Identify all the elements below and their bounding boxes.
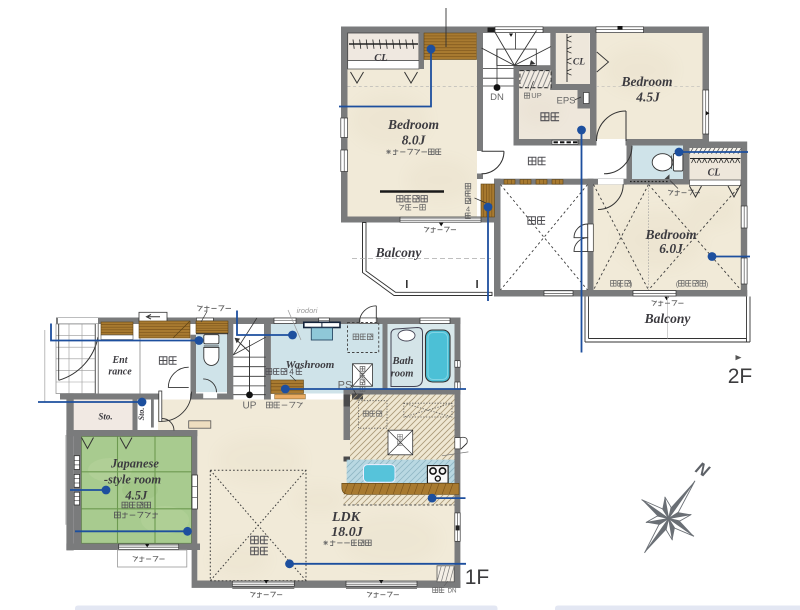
svg-text:-style room: -style room bbox=[104, 473, 162, 487]
svg-text:4.5J: 4.5J bbox=[124, 489, 148, 503]
svg-text:Sto.: Sto. bbox=[98, 412, 112, 422]
svg-text:LDK: LDK bbox=[331, 510, 362, 525]
svg-text:8.0J: 8.0J bbox=[402, 133, 427, 148]
svg-text:EPS: EPS bbox=[556, 96, 575, 107]
svg-text:4: 4 bbox=[466, 204, 470, 213]
svg-text:irodori: irodori bbox=[297, 306, 318, 315]
svg-text:UP: UP bbox=[243, 401, 257, 412]
svg-text:2F: 2F bbox=[728, 365, 753, 388]
svg-text:): ) bbox=[630, 282, 632, 289]
svg-text:Bedroom: Bedroom bbox=[644, 227, 696, 242]
svg-text:DN: DN bbox=[447, 588, 457, 595]
svg-text:CL: CL bbox=[573, 58, 585, 68]
svg-text:Bedroom: Bedroom bbox=[387, 117, 439, 132]
svg-text:1F: 1F bbox=[465, 566, 490, 589]
svg-text:Japanese: Japanese bbox=[110, 457, 159, 471]
svg-text:Balcony: Balcony bbox=[644, 311, 692, 326]
svg-text:): ) bbox=[706, 282, 708, 289]
svg-text:Ent: Ent bbox=[111, 355, 128, 366]
svg-text:18.0J: 18.0J bbox=[331, 525, 364, 540]
svg-text:room: room bbox=[391, 369, 414, 380]
svg-text:UP: UP bbox=[531, 91, 541, 100]
svg-text:Balcony: Balcony bbox=[375, 245, 423, 260]
svg-text:Sto.: Sto. bbox=[137, 408, 146, 421]
svg-text:Bath: Bath bbox=[391, 356, 413, 367]
svg-text:DN: DN bbox=[490, 92, 504, 103]
svg-text:6.0J: 6.0J bbox=[659, 241, 684, 256]
svg-text:CL: CL bbox=[374, 53, 387, 64]
svg-text:rance: rance bbox=[108, 367, 132, 378]
svg-text:4.5J: 4.5J bbox=[635, 90, 661, 105]
svg-text:CL: CL bbox=[708, 168, 721, 179]
